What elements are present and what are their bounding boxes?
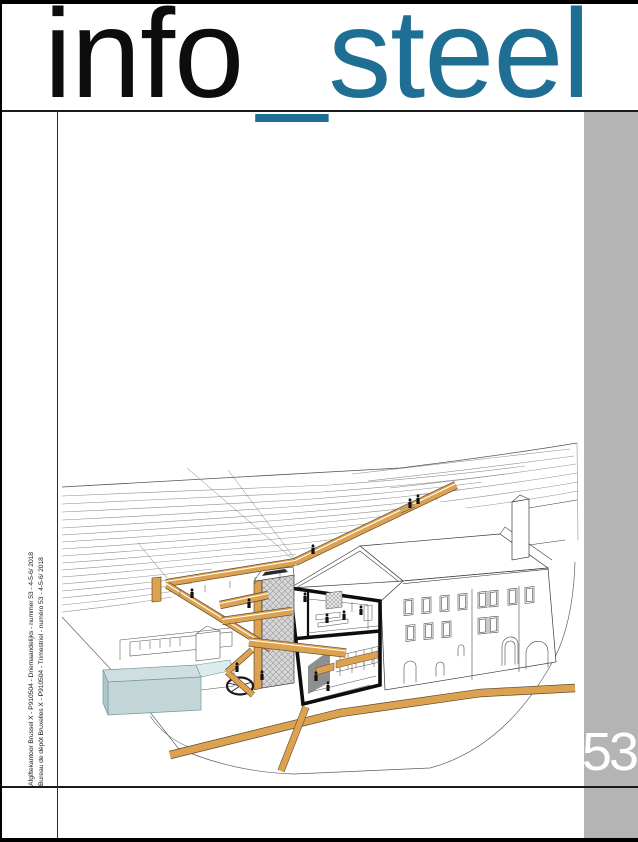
issue-number: 53 xyxy=(582,723,636,781)
spine-imprint-text: Afgiftekantoor Brussel X - P910504 - Dri… xyxy=(27,552,46,786)
bottom-black-bar xyxy=(0,838,638,842)
spine-column-rule xyxy=(57,110,58,838)
orange-street xyxy=(170,688,575,771)
magazine-title: info_steel xyxy=(44,0,589,117)
right-gray-sidebar: 53 xyxy=(584,112,638,838)
spine-line-dutch: Afgiftekantoor Brussel X - P910504 - Dri… xyxy=(27,552,37,786)
gabion-tower xyxy=(254,567,294,690)
title-word-info: info xyxy=(44,0,243,124)
left-border-line xyxy=(0,0,2,842)
title-underscore: _ xyxy=(257,0,326,124)
water-basin xyxy=(103,660,234,750)
footer-divider-rule xyxy=(0,786,638,788)
magazine-cover: info_steel 53 Afgiftekantoor Brussel X -… xyxy=(0,0,638,842)
spine-line-french: Bureau de dépôt Bruxelles X - P910504 - … xyxy=(37,552,47,786)
cover-illustration xyxy=(57,111,584,787)
title-word-steel: steel xyxy=(328,0,589,124)
